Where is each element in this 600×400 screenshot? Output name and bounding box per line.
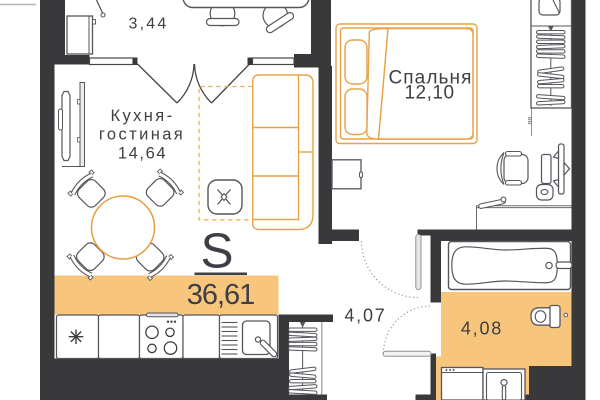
svg-text:гостиная: гостиная: [99, 126, 185, 144]
svg-text:36,61: 36,61: [187, 279, 255, 311]
svg-text:4,07: 4,07: [344, 306, 386, 326]
svg-text:14,64: 14,64: [118, 145, 167, 163]
svg-text:4,08: 4,08: [461, 319, 503, 339]
svg-text:3,44: 3,44: [129, 16, 169, 33]
svg-text:12,10: 12,10: [404, 83, 454, 104]
svg-text:S: S: [200, 224, 233, 279]
svg-text:Кухня-: Кухня-: [110, 107, 174, 125]
